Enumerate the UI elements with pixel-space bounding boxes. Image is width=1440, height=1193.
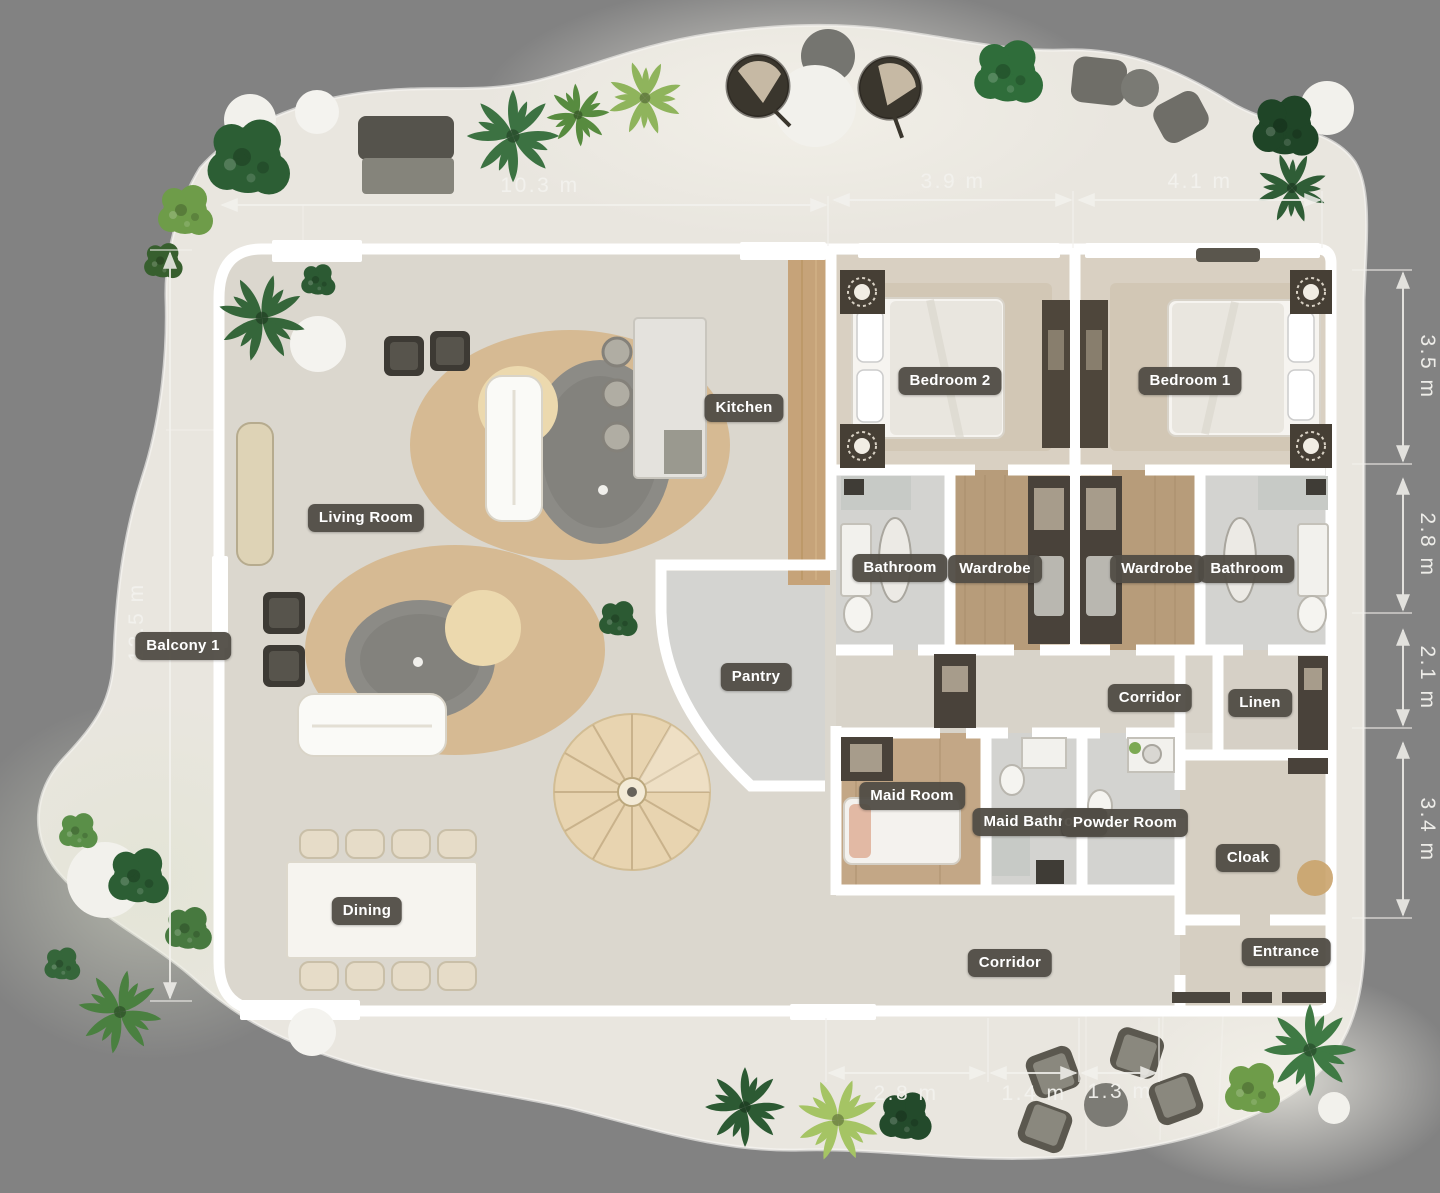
plant <box>165 907 212 950</box>
sofa <box>298 694 446 756</box>
room-label-cloak: Cloak <box>1216 844 1280 872</box>
room-label-pantry: Pantry <box>721 663 792 691</box>
room-label-kitchen: Kitchen <box>704 394 783 422</box>
room-label-bathroom-left: Bathroom <box>852 554 947 582</box>
bedroom-closet <box>1042 300 1070 448</box>
kitchen-wood-wall <box>788 250 830 585</box>
dimension-label: 1.3 m <box>1087 1080 1152 1103</box>
room-label-powder-room: Powder Room <box>1062 809 1188 837</box>
floor-plan-scene: 10.3 m 3.9 m 4.1 m 3.5 m 2.8 m 2.1 m 3.4… <box>0 0 1440 1193</box>
spiral-staircase <box>554 714 710 870</box>
planter <box>295 90 339 134</box>
plant <box>1225 1063 1280 1113</box>
bedroom-closet <box>1080 300 1108 448</box>
dimension-label: 2.1 m <box>1416 645 1439 710</box>
plant <box>599 601 638 636</box>
plant <box>108 848 169 903</box>
armchair <box>384 336 424 376</box>
planter <box>290 316 346 372</box>
room-label-wardrobe-left: Wardrobe <box>948 555 1042 583</box>
room-label-maid-room: Maid Room <box>859 782 965 810</box>
bar-stool <box>603 338 631 451</box>
room-label-linen: Linen <box>1228 689 1292 717</box>
room-label-dining: Dining <box>332 897 402 925</box>
bench <box>1196 248 1260 262</box>
room-label-bedroom-2: Bedroom 2 <box>898 367 1001 395</box>
armchair <box>430 331 470 371</box>
cloak-floor <box>1180 755 1331 920</box>
plant <box>1253 96 1319 156</box>
dimension-label: 2.8 m <box>1416 512 1439 577</box>
plant <box>705 1067 785 1147</box>
planter <box>1318 1092 1350 1124</box>
room-label-corridor-upper: Corridor <box>1108 684 1192 712</box>
dimension-label: 3.9 m <box>920 170 985 193</box>
plant <box>974 40 1043 103</box>
plant <box>144 243 183 278</box>
plant <box>208 120 291 195</box>
room-label-bedroom-1: Bedroom 1 <box>1138 367 1241 395</box>
sideboard <box>237 423 273 565</box>
dimension-label: 3.5 m <box>1416 334 1439 399</box>
dimension-label: 2.8 m <box>873 1082 938 1105</box>
kitchen-sink <box>664 430 702 474</box>
armchair <box>263 645 305 687</box>
plant <box>467 90 559 182</box>
outdoor-cabinet <box>358 116 454 194</box>
room-label-wardrobe-right: Wardrobe <box>1110 555 1204 583</box>
floor-plan: 10.3 m 3.9 m 4.1 m 3.5 m 2.8 m 2.1 m 3.4… <box>0 0 1440 1193</box>
room-label-balcony-1: Balcony 1 <box>135 632 231 660</box>
entrance-furniture <box>1172 992 1326 1003</box>
room-label-bathroom-right: Bathroom <box>1199 555 1294 583</box>
armchair <box>263 592 305 634</box>
sofa <box>486 376 542 521</box>
plant <box>158 185 213 235</box>
dimension-label: 10.3 m <box>500 174 579 197</box>
plant <box>301 264 335 295</box>
room-label-entrance: Entrance <box>1242 938 1331 966</box>
plant <box>1264 1004 1356 1096</box>
plant <box>59 813 98 848</box>
dimension-label: 3.4 m <box>1416 797 1439 862</box>
room-label-living-room: Living Room <box>308 504 424 532</box>
dimension-label: 4.1 m <box>1167 170 1232 193</box>
plant <box>44 947 80 980</box>
side-table <box>445 590 521 666</box>
planter <box>288 1008 336 1056</box>
room-label-corridor-lower: Corridor <box>968 949 1052 977</box>
dimension-label: 1.4 m <box>1001 1082 1066 1105</box>
apartment <box>212 240 1333 1056</box>
